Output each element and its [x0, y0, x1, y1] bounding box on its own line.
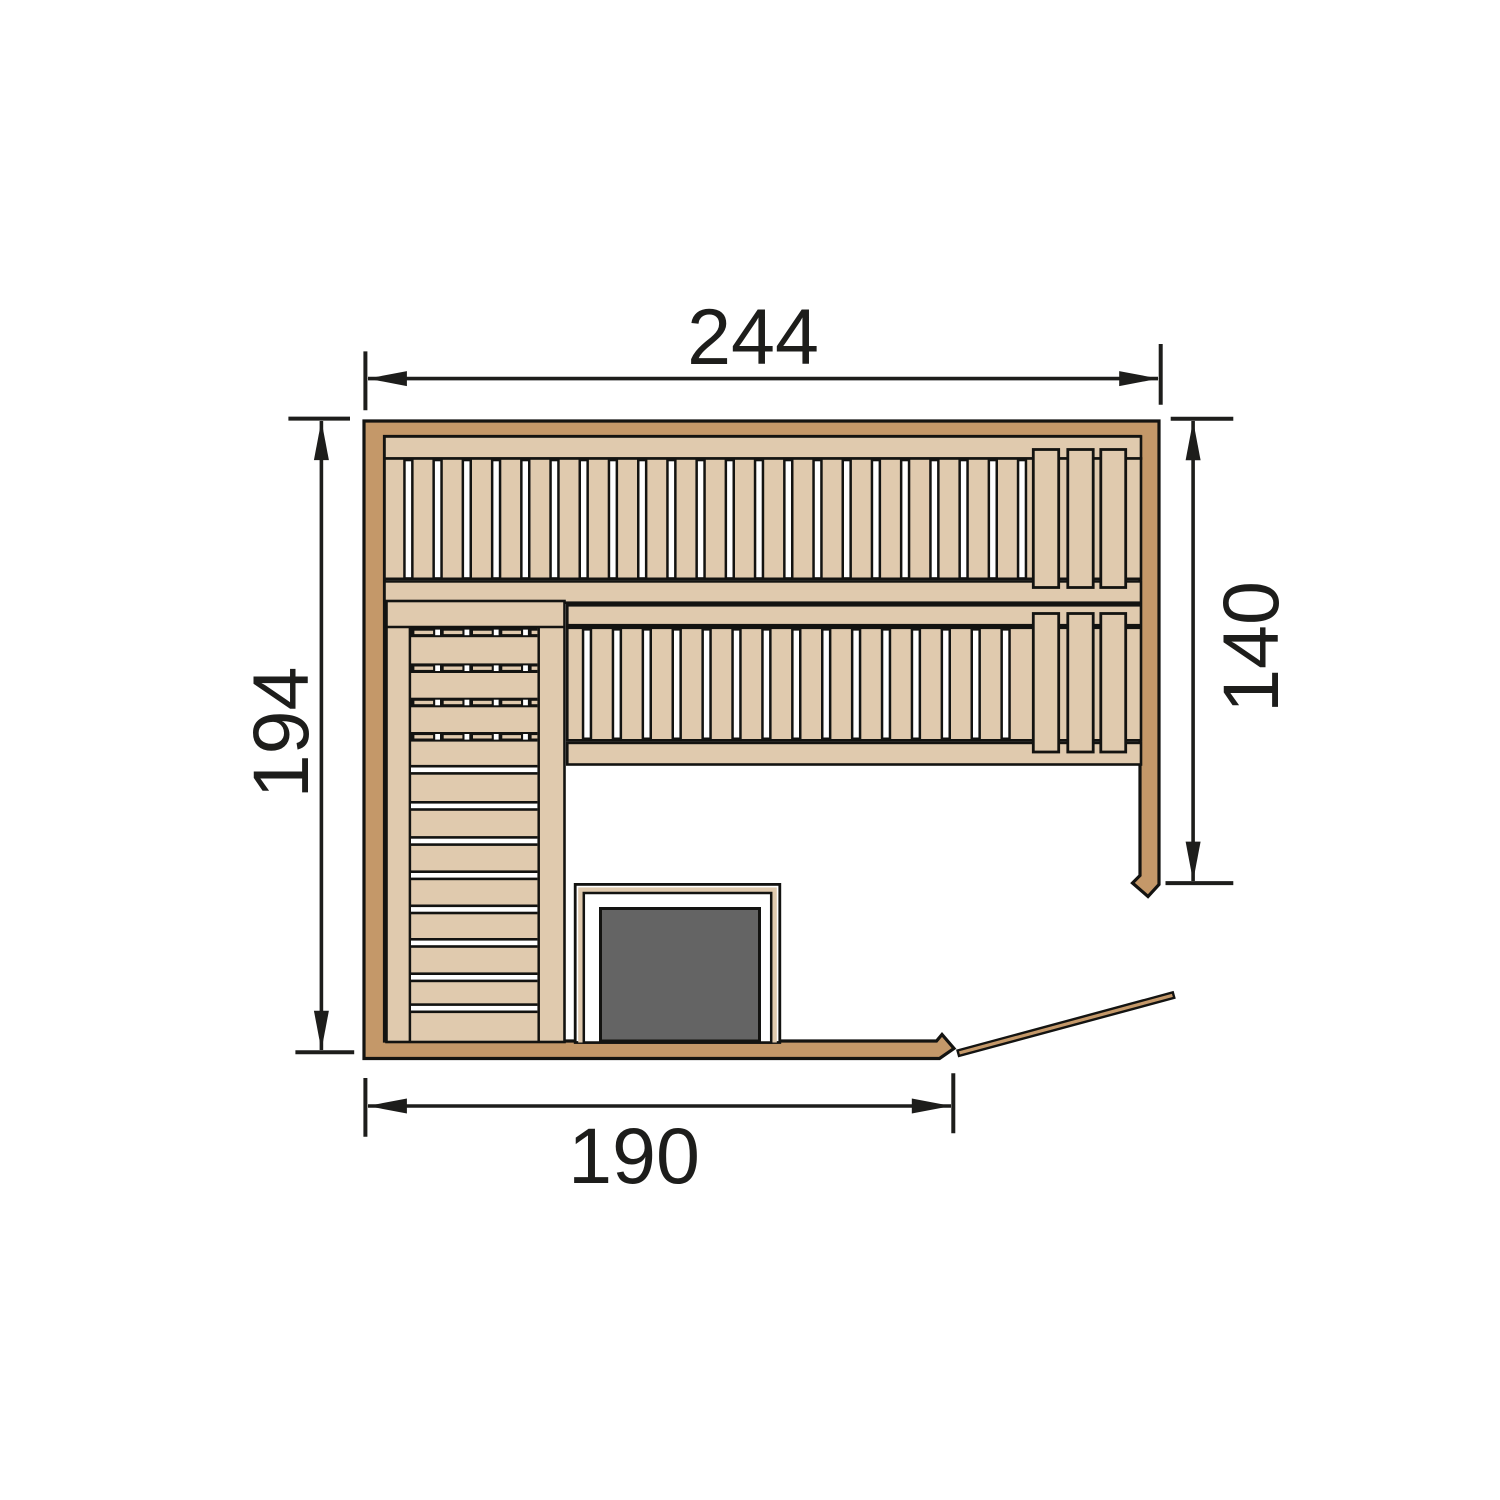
- svg-text:194: 194: [236, 667, 325, 799]
- svg-text:140: 140: [1206, 581, 1295, 713]
- svg-text:190: 190: [568, 1111, 700, 1200]
- svg-text:244: 244: [687, 292, 819, 381]
